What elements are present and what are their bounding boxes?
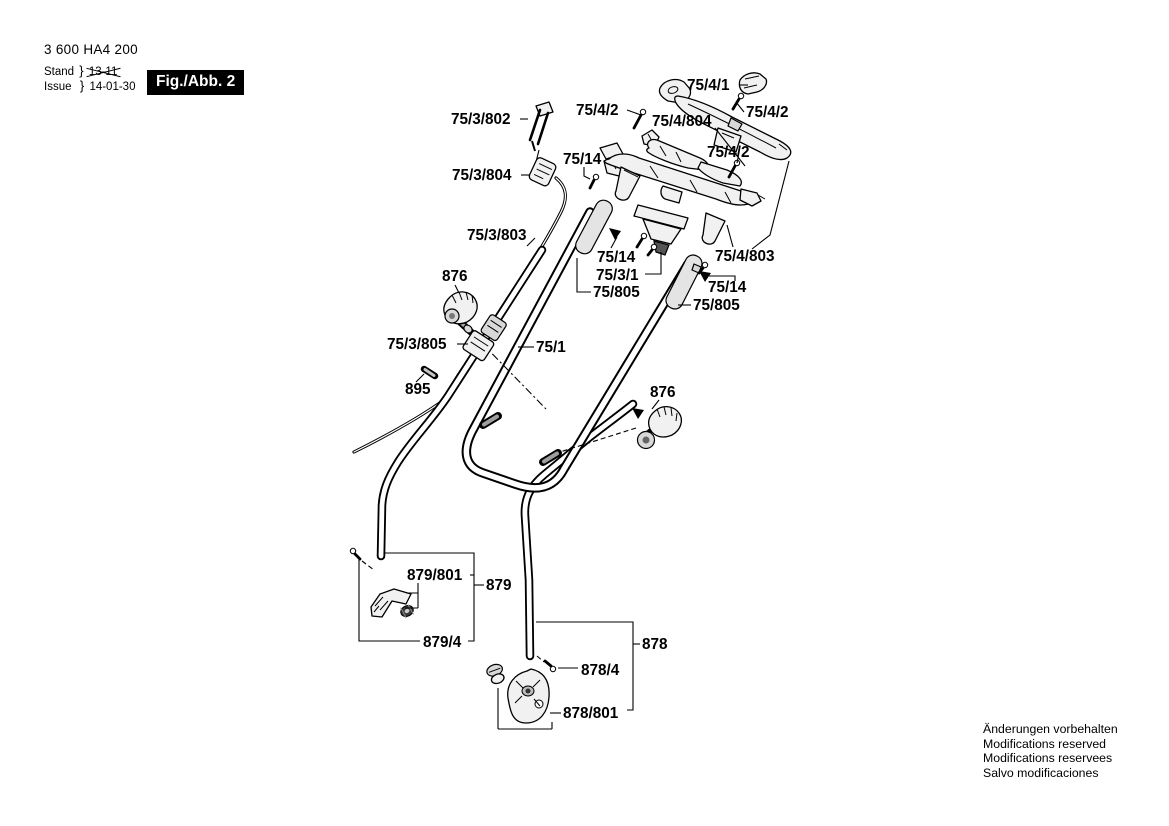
part-label-878: 878 bbox=[642, 636, 668, 653]
clip-75-3-804 bbox=[528, 156, 557, 187]
modifications-notice: Änderungen vorbehalten Modifications res… bbox=[983, 722, 1118, 780]
wing-knob-876-left bbox=[444, 292, 477, 335]
part-label-878-801: 878/801 bbox=[563, 705, 619, 722]
cap-75-4-1 bbox=[739, 73, 766, 94]
part-label-75-805-right: 75/805 bbox=[693, 297, 740, 314]
part-label-75-4-2-top: 75/4/2 bbox=[576, 102, 619, 119]
bracket-878-801 bbox=[485, 662, 549, 723]
notice-line-fr: Modifications reservees bbox=[983, 751, 1118, 766]
part-label-75-4-1: 75/4/1 bbox=[687, 77, 730, 94]
part-label-75-3-802: 75/3/802 bbox=[451, 111, 511, 128]
part-label-879-801: 879/801 bbox=[407, 567, 463, 584]
part-label-75-1: 75/1 bbox=[536, 339, 566, 356]
part-label-75-14-top: 75/14 bbox=[563, 151, 602, 168]
screw-75-14-top bbox=[590, 174, 599, 188]
carriage-bolt-left bbox=[483, 416, 498, 425]
cone-75-3-1 bbox=[634, 205, 688, 255]
part-label-876-left: 876 bbox=[442, 268, 468, 285]
screw-75-14-left-1 bbox=[637, 233, 647, 247]
part-label-75-805-left: 75/805 bbox=[593, 284, 640, 301]
screw-75-14-left-2 bbox=[648, 244, 657, 255]
cable-guide-879-801 bbox=[371, 589, 416, 619]
screw-878-4 bbox=[545, 661, 556, 672]
screw-75-4-2-b bbox=[733, 93, 744, 109]
part-label-75-4-2-mid: 75/4/2 bbox=[707, 144, 750, 161]
part-label-879: 879 bbox=[486, 577, 512, 594]
notice-line-de: Änderungen vorbehalten bbox=[983, 722, 1118, 737]
part-label-75-3-803: 75/3/803 bbox=[467, 227, 527, 244]
arrow-to-right-tube bbox=[632, 408, 644, 419]
fork-pin-75-3-802 bbox=[530, 102, 553, 162]
part-label-75-4-2-right: 75/4/2 bbox=[746, 104, 789, 121]
part-label-878-4: 878/4 bbox=[581, 662, 620, 679]
upper-handle-tube-75-1 bbox=[466, 212, 688, 488]
part-label-895: 895 bbox=[405, 381, 431, 398]
part-label-879-4: 879/4 bbox=[423, 634, 462, 651]
part-label-75-4-804: 75/4/804 bbox=[652, 113, 712, 130]
wing-knob-876-right bbox=[638, 407, 682, 449]
notice-line-es: Salvo modificaciones bbox=[983, 766, 1118, 781]
exploded-parts-diagram: 75/4/1 75/4/2 75/4/804 75/4/2 75/3/802 7… bbox=[0, 0, 1169, 826]
screw-75-4-2-a bbox=[634, 109, 646, 128]
part-label-75-3-804: 75/3/804 bbox=[452, 167, 512, 184]
part-label-75-3-1: 75/3/1 bbox=[596, 267, 639, 284]
part-label-75-4-803: 75/4/803 bbox=[715, 248, 775, 265]
part-label-75-14-right: 75/14 bbox=[708, 279, 747, 296]
notice-line-en: Modifications reserved bbox=[983, 737, 1118, 752]
part-label-876-right: 876 bbox=[650, 384, 676, 401]
pin-895 bbox=[424, 369, 435, 376]
part-label-75-14-left: 75/14 bbox=[597, 249, 636, 266]
part-label-75-3-805: 75/3/805 bbox=[387, 336, 447, 353]
